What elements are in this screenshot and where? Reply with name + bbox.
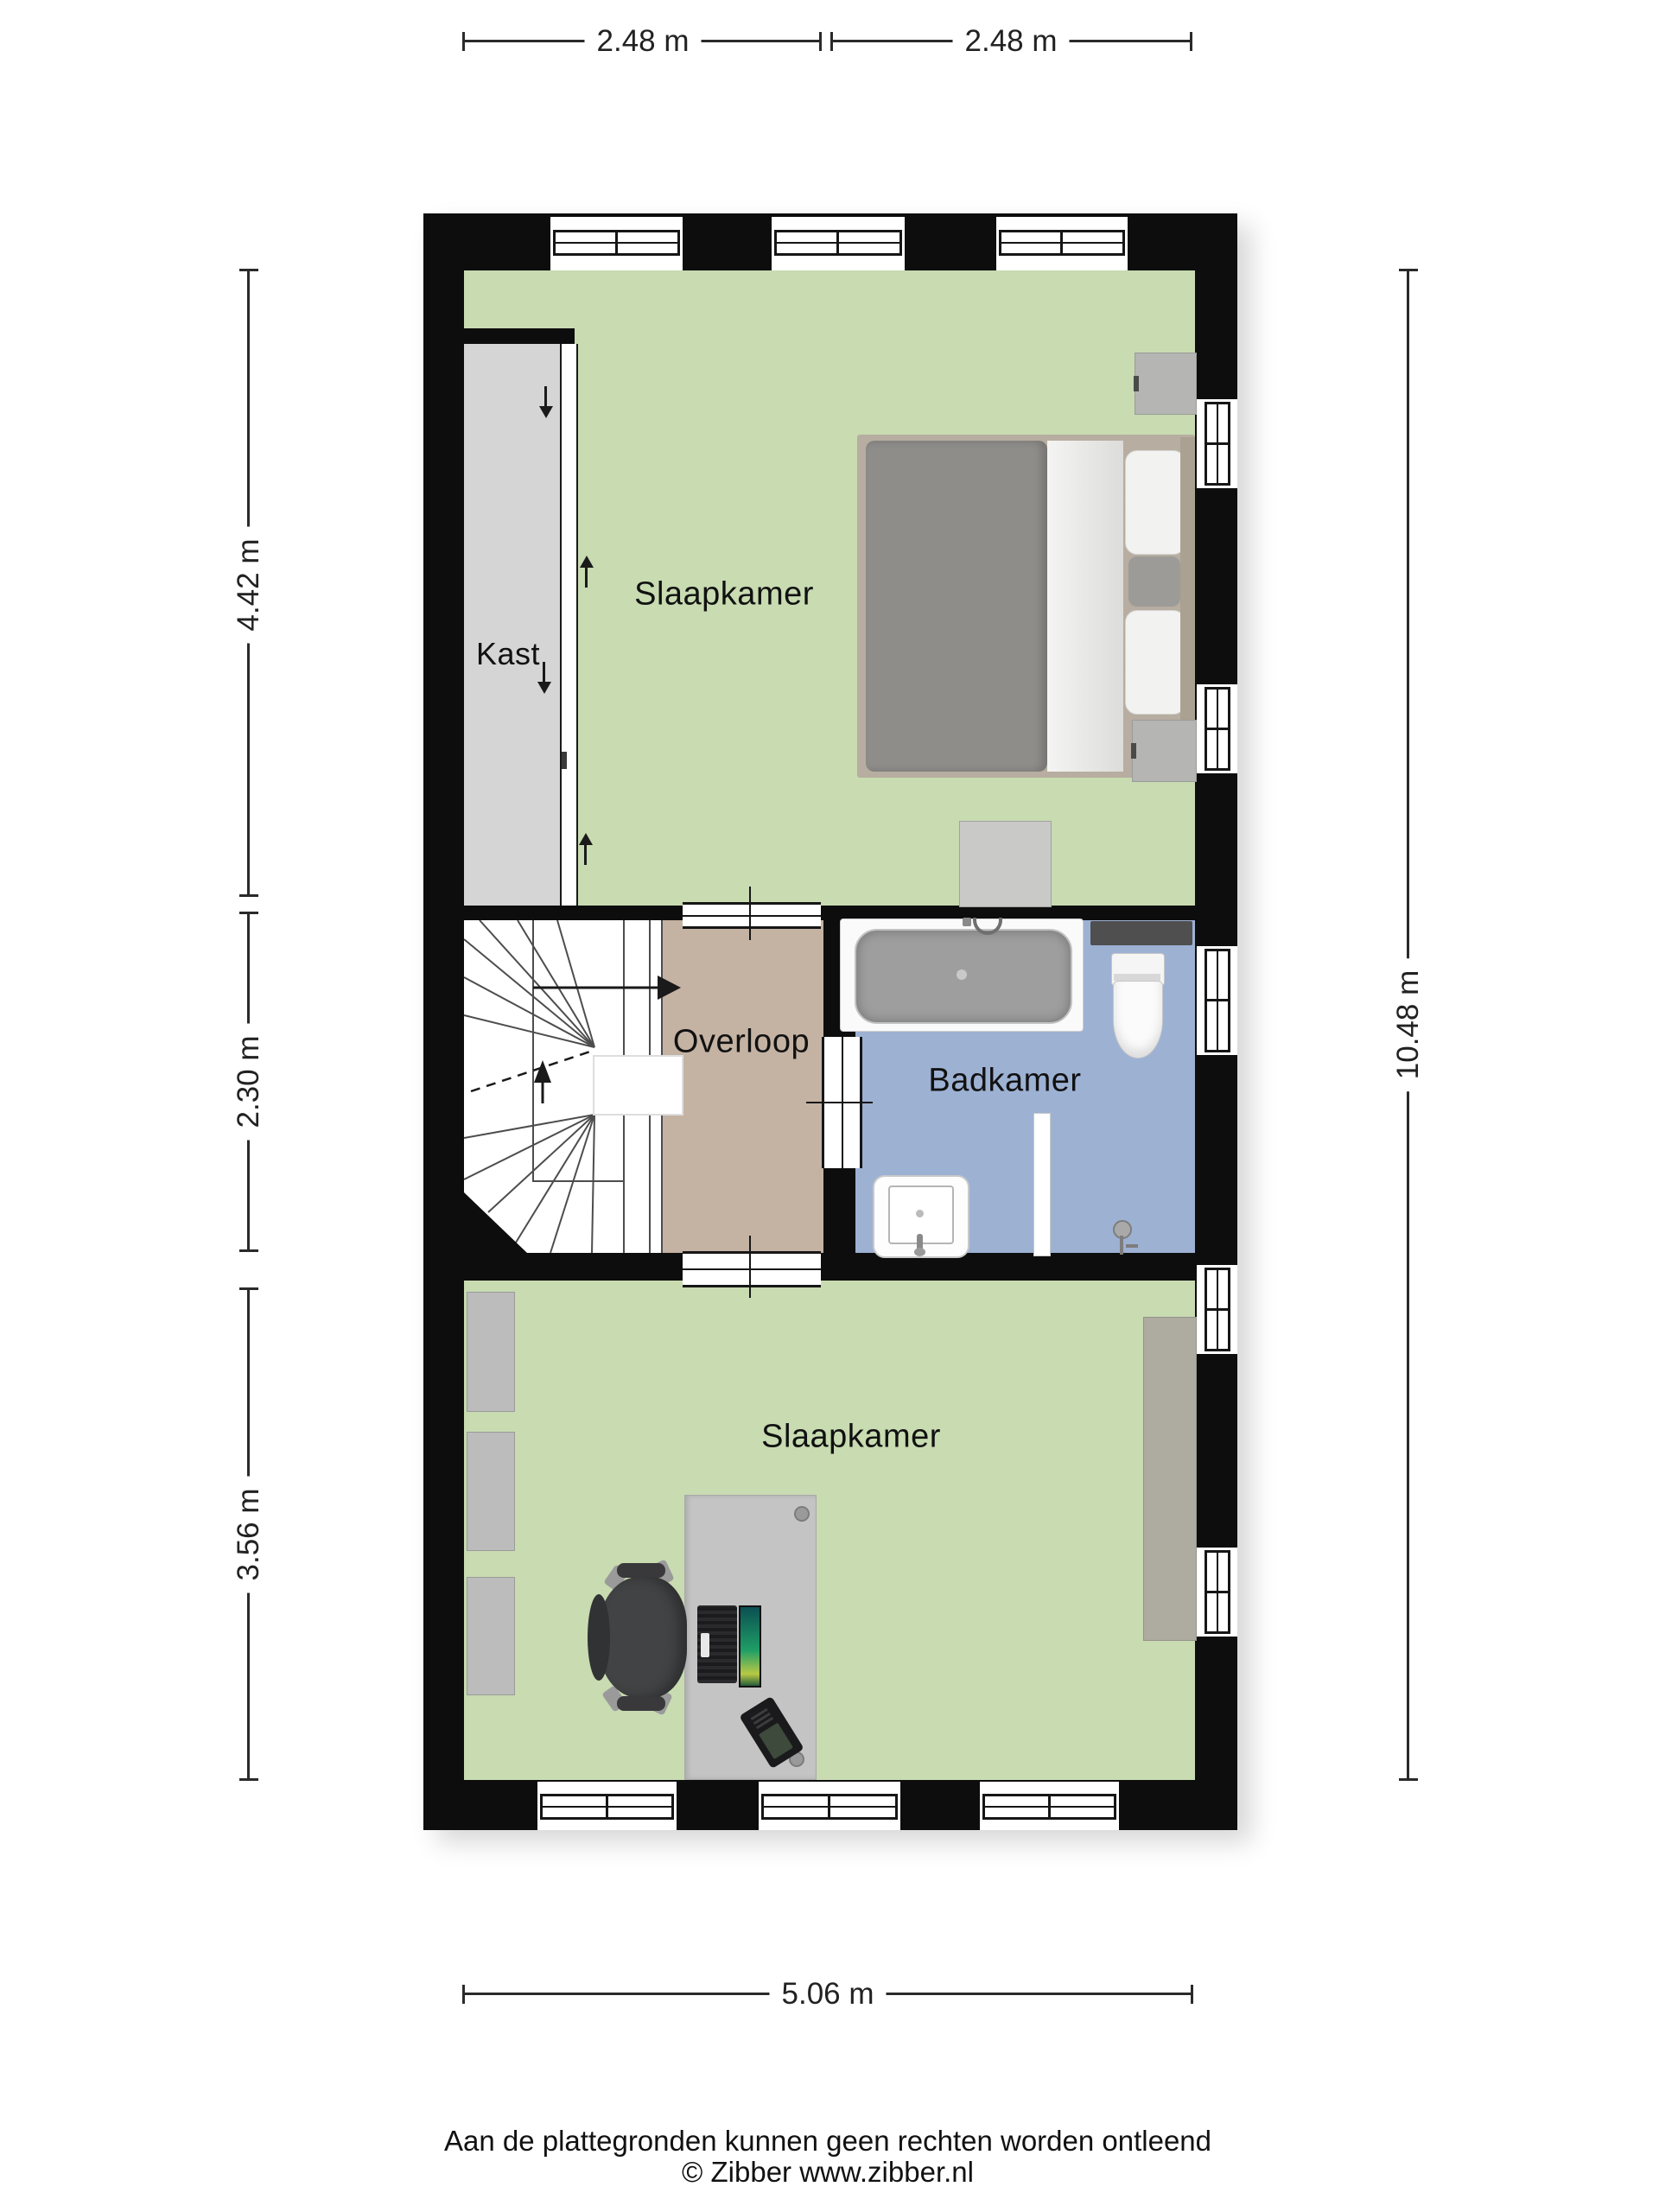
stairs-dashed-line bbox=[471, 1051, 593, 1091]
window-right-2 bbox=[1197, 684, 1237, 773]
stairs bbox=[464, 920, 684, 1253]
dimension-bottom-label: 5.06 m bbox=[770, 1977, 887, 2012]
office-chair bbox=[588, 1560, 691, 1715]
room-label-bedroom-top: Slaapkamer bbox=[634, 576, 814, 613]
wall-bedroom-top-middle-left bbox=[464, 906, 683, 920]
dimension-right-label: 10.48 m bbox=[1391, 958, 1426, 1091]
bed-duvet bbox=[866, 441, 1047, 772]
desk bbox=[684, 1495, 817, 1780]
dimension-top-right-label: 2.48 m bbox=[953, 24, 1070, 59]
toilet bbox=[1110, 953, 1164, 1057]
wall-left bbox=[423, 213, 464, 1830]
window-right-5 bbox=[1197, 1548, 1237, 1637]
wall-middle-bedroom-bottom-right bbox=[821, 1253, 1195, 1281]
room-label-bathroom: Badkamer bbox=[928, 1063, 1081, 1100]
bed-pillow-1 bbox=[1125, 450, 1185, 555]
room-label-landing: Overloop bbox=[673, 1024, 810, 1061]
bed-cushion bbox=[1128, 556, 1180, 607]
stairs-top-door bbox=[594, 1056, 683, 1115]
door-bedroom-top-landing bbox=[683, 902, 821, 929]
bed-pillow-2 bbox=[1125, 610, 1185, 715]
window-top-2 bbox=[772, 217, 905, 270]
door-bedroom-bottom-landing bbox=[683, 1251, 821, 1287]
closet-wall-stub bbox=[464, 328, 575, 344]
window-right-3 bbox=[1197, 946, 1237, 1055]
stairs-chamfer-wall bbox=[464, 1192, 527, 1253]
room-landing-floor bbox=[663, 920, 823, 1253]
window-bottom-3 bbox=[980, 1782, 1119, 1830]
window-top-1 bbox=[550, 217, 683, 270]
room-label-closet: Kast bbox=[476, 636, 540, 672]
nightstand-top bbox=[1135, 353, 1197, 415]
closet-sliding-door bbox=[560, 344, 578, 906]
wall-landing-bathroom-lower bbox=[823, 1168, 855, 1253]
window-top-3 bbox=[996, 217, 1128, 270]
wall-middle-bedroom-bottom-left bbox=[464, 1253, 683, 1281]
stairs-walk-direction-arrow-icon bbox=[658, 976, 681, 1000]
dimension-left-upper-label: 4.42 m bbox=[232, 527, 266, 644]
floor-plan-page: { "plan": { "rooms": { "bedroom_top": { … bbox=[0, 0, 1659, 2212]
desk-grommet-top bbox=[794, 1506, 810, 1522]
dresser bbox=[959, 821, 1052, 907]
laptop-keyboard bbox=[697, 1605, 737, 1683]
radiator bbox=[1090, 921, 1192, 945]
wardrobe-left-1 bbox=[467, 1292, 515, 1412]
dimension-left-middle-label: 2.30 m bbox=[232, 1024, 266, 1141]
dimension-left-lower-label: 3.56 m bbox=[232, 1477, 266, 1593]
laptop-screen bbox=[739, 1605, 761, 1688]
dimension-top-left-label: 2.48 m bbox=[585, 24, 702, 59]
shower-partition bbox=[1033, 1113, 1051, 1256]
washbasin bbox=[873, 1175, 969, 1258]
room-label-bedroom-bottom: Slaapkamer bbox=[761, 1419, 941, 1456]
bed-sheet bbox=[1047, 441, 1123, 772]
footer-disclaimer: Aan de plattegronden kunnen geen rechten… bbox=[444, 2125, 1211, 2158]
bathtub-drain bbox=[957, 969, 967, 980]
toilet-bowl bbox=[1113, 981, 1163, 1058]
closet-door-handle bbox=[562, 752, 567, 769]
office-chair-armrest-bottom bbox=[617, 1696, 665, 1711]
wardrobe-left-3 bbox=[467, 1577, 515, 1695]
wardrobe-right bbox=[1143, 1317, 1197, 1641]
nightstand-bottom bbox=[1132, 720, 1197, 782]
room-closet-floor bbox=[464, 344, 560, 906]
wardrobe-left-2 bbox=[467, 1432, 515, 1551]
window-bottom-1 bbox=[537, 1782, 677, 1830]
office-chair-armrest-top bbox=[617, 1563, 665, 1578]
room-bedroom-bottom-floor bbox=[464, 1281, 1195, 1780]
window-right-4 bbox=[1197, 1265, 1237, 1354]
office-chair-backrest bbox=[588, 1594, 610, 1681]
stairs-up-arrow-icon bbox=[534, 1060, 551, 1083]
footer-copyright: © Zibber www.zibber.nl bbox=[682, 2156, 974, 2189]
bathtub bbox=[840, 918, 1084, 1032]
window-right-1 bbox=[1197, 399, 1237, 488]
window-bottom-2 bbox=[759, 1782, 900, 1830]
office-chair-seat bbox=[598, 1577, 687, 1698]
washbasin-drain bbox=[916, 1210, 924, 1217]
